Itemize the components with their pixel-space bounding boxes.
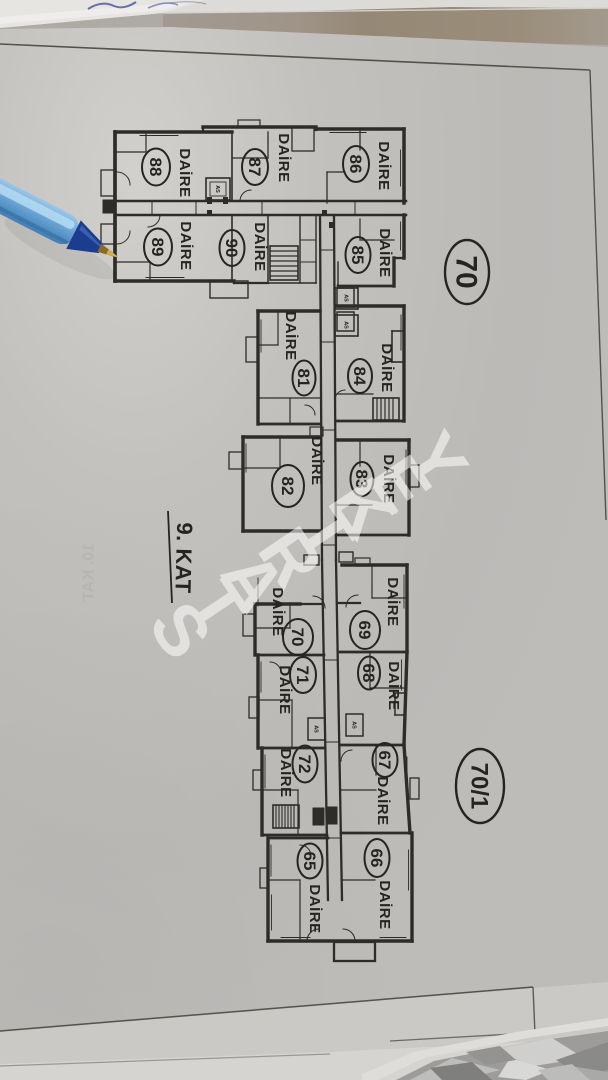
svg-text:86: 86 (346, 155, 365, 174)
svg-text:DAİRE: DAİRE (308, 436, 325, 485)
svg-text:DAİRE: DAİRE (385, 661, 402, 710)
svg-text:DAİRE: DAİRE (378, 343, 395, 392)
svg-text:DAİRE: DAİRE (277, 748, 294, 797)
svg-text:DAİRE: DAİRE (374, 776, 391, 825)
svg-text:DAİRE: DAİRE (376, 880, 393, 929)
svg-text:70: 70 (288, 628, 307, 647)
svg-text:AS: AS (351, 721, 357, 729)
svg-text:AS: AS (343, 321, 349, 329)
svg-text:66: 66 (367, 849, 386, 868)
svg-text:10. KAT: 10. KAT (81, 543, 98, 602)
svg-text:70/1: 70/1 (466, 763, 493, 810)
svg-text:DAİRE: DAİRE (251, 222, 268, 271)
svg-text:67: 67 (375, 751, 394, 770)
svg-text:89: 89 (148, 238, 167, 257)
svg-text:DAİRE: DAİRE (177, 221, 194, 270)
svg-text:88: 88 (146, 158, 165, 177)
svg-text:9. KAT: 9. KAT (170, 522, 197, 594)
svg-text:81: 81 (294, 369, 313, 388)
svg-text:DAİRE: DAİRE (306, 884, 323, 933)
svg-text:65: 65 (300, 852, 319, 871)
svg-text:DAİRE: DAİRE (384, 577, 401, 626)
svg-text:85: 85 (348, 246, 367, 265)
svg-text:AS: AS (214, 185, 220, 193)
svg-text:72: 72 (295, 755, 314, 774)
svg-text:90: 90 (222, 239, 241, 258)
svg-text:DAİRE: DAİRE (376, 228, 393, 277)
svg-text:84: 84 (350, 367, 369, 386)
svg-text:70: 70 (450, 255, 483, 288)
svg-text:DAİRE: DAİRE (275, 133, 292, 182)
svg-text:71: 71 (293, 666, 312, 685)
svg-text:68: 68 (359, 664, 378, 683)
svg-text:DAİRE: DAİRE (176, 148, 193, 197)
svg-text:DAİRE: DAİRE (375, 141, 392, 190)
svg-text:DAİRE: DAİRE (282, 311, 299, 360)
svg-text:87: 87 (245, 158, 264, 177)
svg-text:82: 82 (278, 477, 297, 496)
svg-text:AS: AS (313, 725, 319, 733)
svg-text:AS: AS (343, 294, 349, 302)
svg-text:69: 69 (355, 621, 374, 640)
